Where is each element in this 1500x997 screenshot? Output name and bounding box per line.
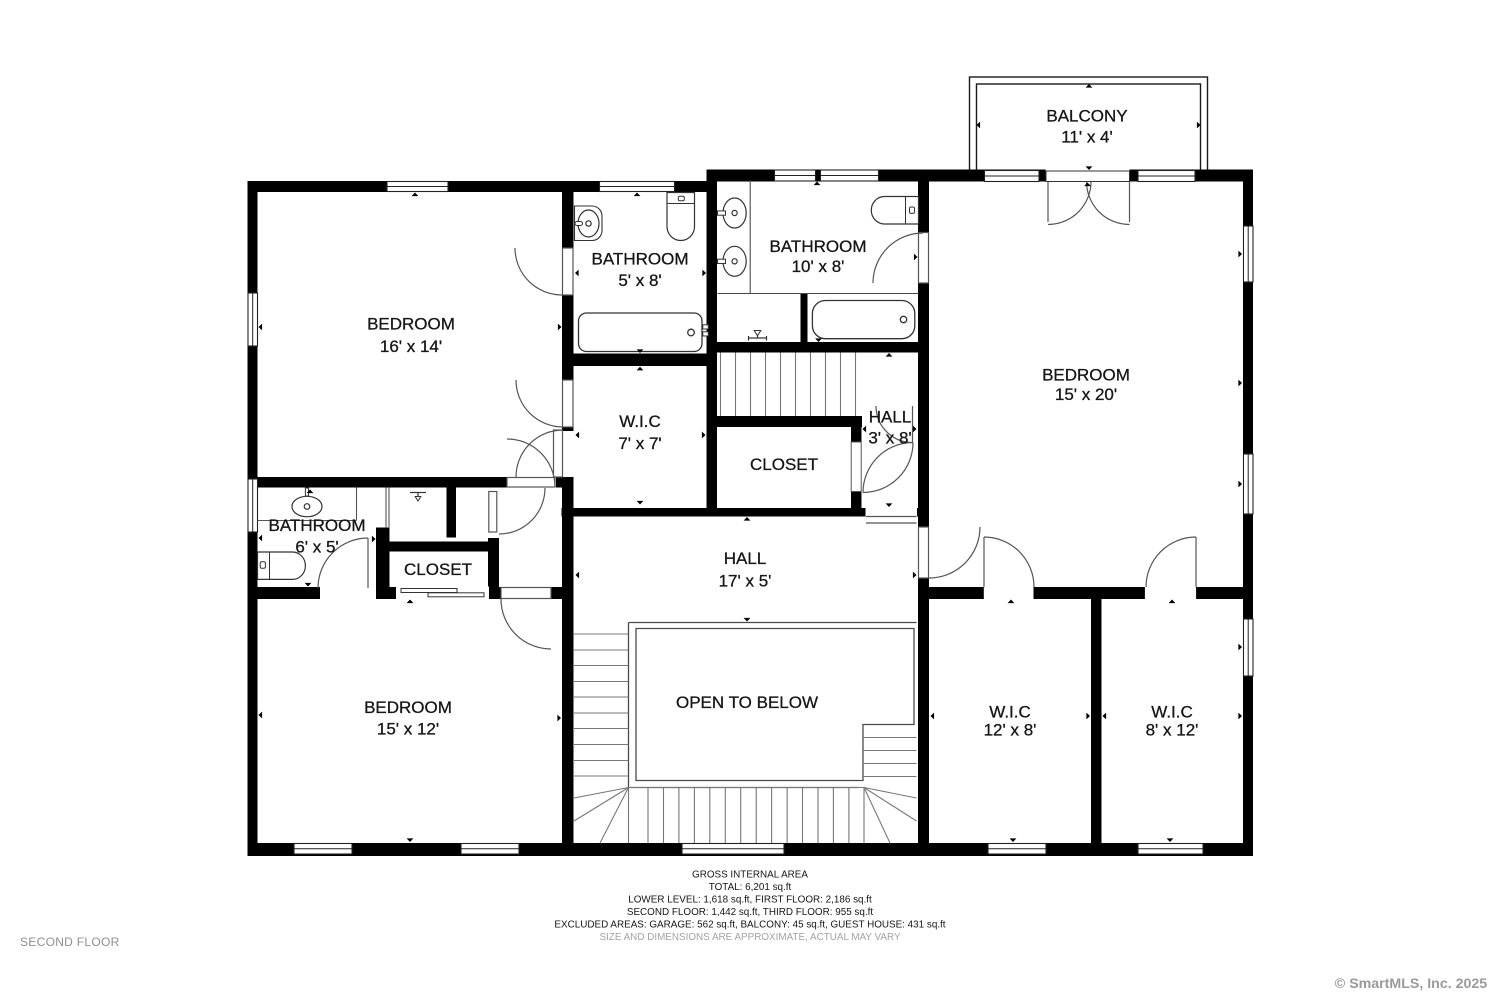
svg-text:W.I.C: W.I.C: [989, 703, 1031, 722]
svg-text:10' x 8': 10' x 8': [792, 257, 845, 276]
svg-text:12' x 8': 12' x 8': [984, 721, 1037, 740]
svg-text:OPEN TO BELOW: OPEN TO BELOW: [676, 693, 818, 712]
svg-text:BATHROOM: BATHROOM: [592, 250, 689, 269]
svg-text:11' x 4': 11' x 4': [1061, 128, 1113, 147]
svg-text:8' x 12': 8' x 12': [1146, 721, 1199, 740]
svg-text:BATHROOM: BATHROOM: [770, 237, 867, 256]
svg-text:EXCLUDED AREAS: GARAGE: 562 sq: EXCLUDED AREAS: GARAGE: 562 sq.ft, BALCO…: [554, 920, 945, 931]
svg-text:BALCONY: BALCONY: [1046, 107, 1127, 126]
svg-text:© SmartMLS, Inc. 2025: © SmartMLS, Inc. 2025: [1335, 976, 1487, 992]
svg-text:16' x 14': 16' x 14': [380, 337, 442, 356]
svg-text:7' x 7': 7' x 7': [618, 434, 661, 453]
svg-text:17' x 5': 17' x 5': [719, 572, 772, 591]
svg-text:BEDROOM: BEDROOM: [364, 698, 452, 717]
svg-text:SIZE AND DIMENSIONS ARE APPROX: SIZE AND DIMENSIONS ARE APPROXIMATE, ACT…: [599, 932, 900, 943]
svg-text:HALL: HALL: [869, 408, 912, 427]
svg-text:W.I.C: W.I.C: [1151, 703, 1193, 722]
svg-text:LOWER LEVEL: 1,618 sq.ft, FIRS: LOWER LEVEL: 1,618 sq.ft, FIRST FLOOR: 2…: [628, 895, 872, 906]
svg-text:BATHROOM: BATHROOM: [269, 516, 366, 535]
svg-text:6' x 5': 6' x 5': [295, 538, 338, 557]
svg-text:3' x 8': 3' x 8': [868, 429, 911, 448]
svg-text:SECOND FLOOR: 1,442 sq.ft, THI: SECOND FLOOR: 1,442 sq.ft, THIRD FLOOR: …: [627, 907, 873, 918]
svg-text:SECOND FLOOR: SECOND FLOOR: [20, 935, 120, 949]
svg-text:BEDROOM: BEDROOM: [1042, 366, 1130, 385]
svg-text:TOTAL: 6,201 sq.ft: TOTAL: 6,201 sq.ft: [709, 882, 792, 893]
svg-text:CLOSET: CLOSET: [404, 560, 472, 579]
svg-text:GROSS INTERNAL AREA: GROSS INTERNAL AREA: [692, 870, 808, 881]
svg-text:5' x 8': 5' x 8': [618, 271, 661, 290]
svg-text:15' x 12': 15' x 12': [377, 720, 439, 739]
svg-text:CLOSET: CLOSET: [750, 455, 818, 474]
svg-text:15' x 20': 15' x 20': [1055, 385, 1117, 404]
svg-text:W.I.C: W.I.C: [619, 412, 661, 431]
svg-text:BEDROOM: BEDROOM: [367, 315, 455, 334]
svg-text:HALL: HALL: [724, 549, 767, 568]
